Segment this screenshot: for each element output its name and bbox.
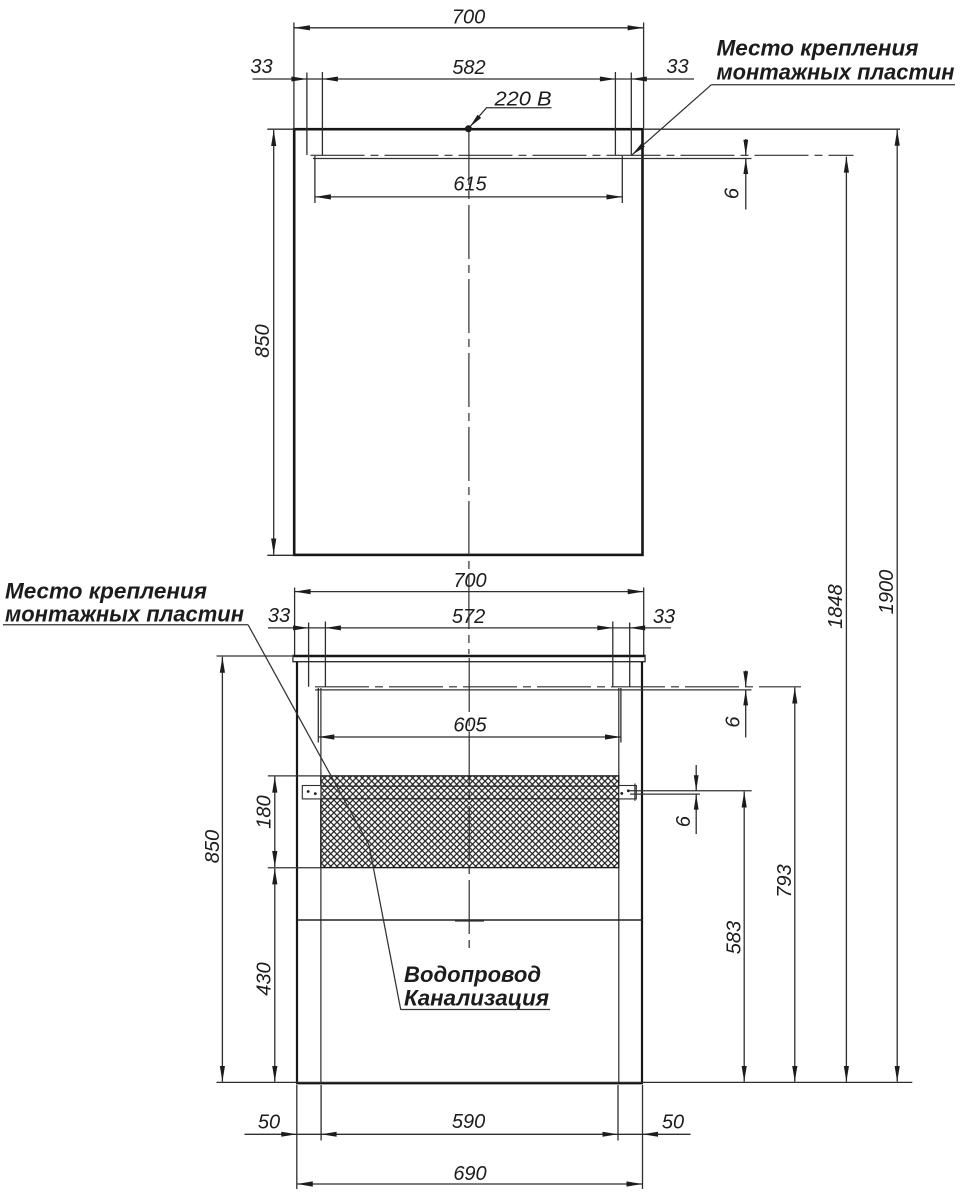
svg-text:1900: 1900 — [876, 570, 898, 615]
svg-text:Канализация: Канализация — [404, 986, 549, 1011]
svg-text:монтажных пластин: монтажных пластин — [717, 60, 955, 85]
svg-text:Место крепления: Место крепления — [717, 36, 919, 61]
svg-text:615: 615 — [453, 174, 487, 196]
svg-text:572: 572 — [452, 606, 485, 628]
svg-text:850: 850 — [202, 830, 224, 863]
svg-text:6: 6 — [722, 187, 744, 199]
svg-text:50: 50 — [662, 1112, 684, 1134]
svg-text:605: 605 — [453, 715, 487, 737]
svg-text:700: 700 — [452, 7, 485, 29]
svg-text:690: 690 — [453, 1163, 486, 1185]
svg-text:590: 590 — [452, 1111, 485, 1133]
svg-text:Место крепления: Место крепления — [5, 579, 207, 604]
svg-text:Водопровод: Водопровод — [404, 962, 541, 987]
svg-text:монтажных пластин: монтажных пластин — [5, 602, 244, 627]
svg-text:850: 850 — [252, 324, 274, 357]
svg-text:6: 6 — [673, 815, 695, 827]
svg-text:33: 33 — [250, 56, 272, 78]
svg-text:33: 33 — [653, 606, 675, 628]
svg-text:33: 33 — [666, 56, 688, 78]
svg-text:583: 583 — [724, 921, 746, 954]
svg-text:793: 793 — [774, 864, 796, 897]
svg-text:582: 582 — [452, 57, 485, 79]
svg-text:6: 6 — [723, 716, 745, 728]
svg-text:180: 180 — [254, 795, 276, 828]
svg-text:700: 700 — [453, 570, 486, 592]
svg-text:33: 33 — [268, 605, 290, 627]
svg-text:1848: 1848 — [825, 584, 847, 629]
svg-text:430: 430 — [254, 962, 276, 995]
svg-text:50: 50 — [258, 1112, 280, 1134]
